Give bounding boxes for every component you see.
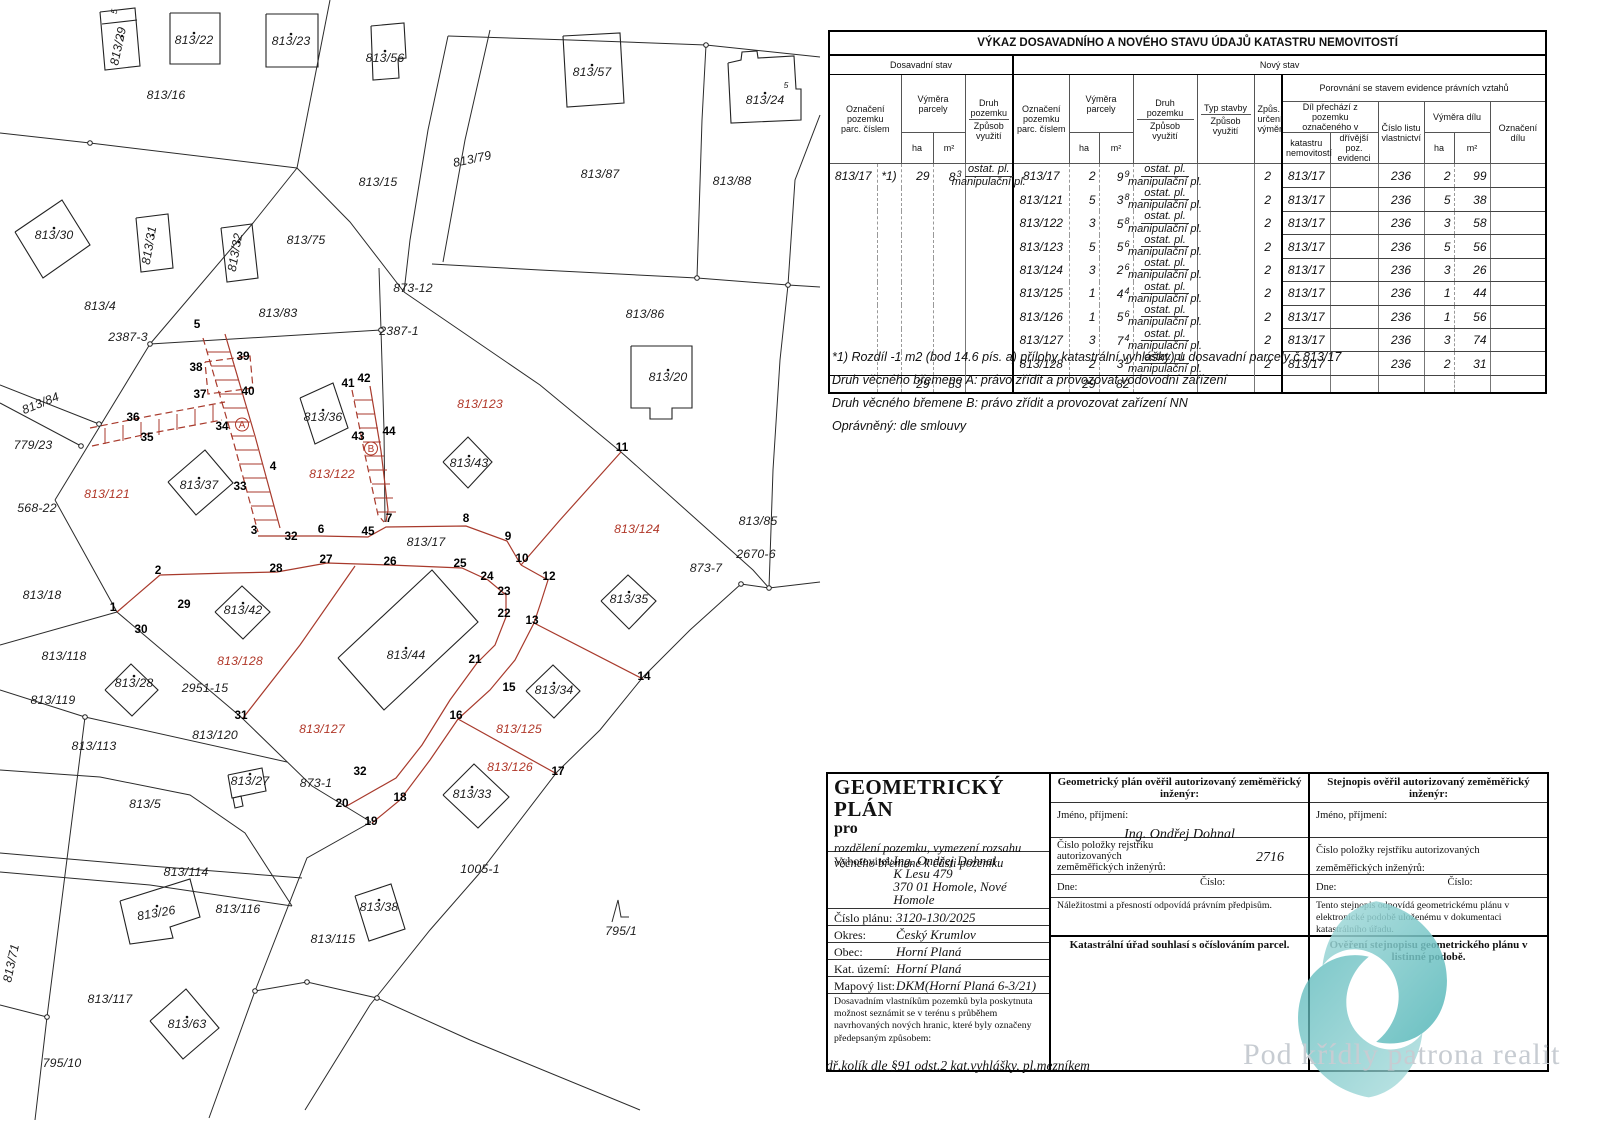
cell-old-ha [901, 258, 933, 281]
col-parcel-old: Označení pozemku parc. číslem [829, 75, 901, 164]
col-parcel-new: Označení pozemku parc. číslem [1013, 75, 1069, 164]
ha-label: ha [1069, 133, 1099, 164]
parcel-label: 813/83 [259, 306, 298, 320]
cell-new-landtype: ostat. pl.manipulační pl. [1133, 235, 1197, 258]
field-label: Mapový list: [834, 979, 896, 991]
building-dot [591, 64, 594, 67]
cell-old-landtype [965, 235, 1013, 258]
point-number: 11 [616, 440, 629, 454]
building-dot [468, 455, 471, 458]
cell-old-m2 [933, 305, 965, 328]
parcel-label: 813/4 [84, 299, 116, 313]
field-label: Okres: [834, 928, 896, 940]
building-dot [405, 647, 408, 650]
cell-new-ha: 3 [1069, 211, 1099, 234]
cell-old-ha [901, 305, 933, 328]
land-registry-table: VÝKAZ DOSAVADNÍHO A NOVÉHO STAVU ÚDAJŮ K… [828, 30, 1547, 394]
cell-new-ha: 1 [1069, 282, 1099, 305]
parcel-label: 813/84 [20, 390, 61, 418]
point-number: 27 [319, 552, 333, 566]
reg-value: 2716 [1256, 850, 1284, 866]
parcel-label: 813/20 [649, 370, 688, 384]
cell-part-id [1490, 164, 1546, 188]
cell-new-landtype: ostat. pl.manipulační pl. [1133, 282, 1197, 305]
cell-old-parcel [829, 329, 877, 352]
parcel-label: 813/36 [304, 410, 343, 424]
cell-old-note [877, 211, 901, 234]
parcel-label: 813/28 [115, 676, 154, 690]
cell-new-landtype: ostat. pl.manipulační pl. [1133, 211, 1197, 234]
parcel-label: 813/37 [180, 478, 220, 492]
cell-part-ha: 5 [1424, 188, 1454, 211]
cell-new-ha: 3 [1069, 329, 1099, 352]
footnote: Druh věcného břemene B: právo zřídit a p… [832, 396, 1341, 410]
point-number: 16 [449, 708, 463, 722]
point-number: 32 [353, 764, 367, 778]
cell-old-parcel [829, 235, 877, 258]
cell-buildtype [1197, 329, 1254, 352]
parcel-label: 813/116 [216, 902, 261, 916]
building-dot [378, 899, 381, 902]
parcel-label: 813/57 [573, 65, 613, 79]
plan-title-text: GEOMETRICKÝ PLÁN [834, 776, 1043, 820]
col-ownership-sheet: Číslo listu vlastnictví [1378, 102, 1424, 164]
cell-new-ha: 5 [1069, 235, 1099, 258]
parcel-label: 568-22 [17, 501, 57, 515]
point-number: 38 [189, 360, 203, 374]
date-number-row: Dne: Číslo: [1310, 875, 1547, 898]
easement-hatching [207, 352, 278, 520]
table-row: 813/124326ostat. pl.manipulační pl.2813/… [829, 258, 1546, 281]
building-dot [322, 409, 325, 412]
parcel-label: 813/123 [457, 397, 503, 411]
point-number: 13 [525, 613, 539, 627]
cell-from-former [1330, 164, 1378, 188]
date-label: Dne: [1316, 882, 1336, 893]
cell-part-id [1490, 211, 1546, 234]
footnote: Druh věcného břemene A: právo zřídit a p… [832, 373, 1341, 387]
cell-old-ha [901, 211, 933, 234]
buildings [15, 8, 801, 1059]
ha-label: ha [901, 133, 933, 164]
parcel-label: 2387-1 [378, 324, 419, 338]
point-number: 17 [551, 764, 565, 778]
cell-old-m2 [933, 188, 965, 211]
cell-part-id [1490, 188, 1546, 211]
cell-part-ha: 3 [1424, 211, 1454, 234]
cell-part-ha: 3 [1424, 329, 1454, 352]
verify-copy-header: Stejnopis ověřil autorizovaný zeměměřick… [1310, 774, 1547, 803]
parcel-label: 813/87 [581, 167, 621, 181]
boundary-lines [0, 0, 820, 1120]
parcel-label: 873-12 [393, 281, 433, 295]
use-label: Způsob využití [969, 119, 1010, 142]
point-number: 19 [364, 814, 378, 828]
point-number: 7 [386, 511, 393, 525]
parcel-label: 813/88 [713, 174, 752, 188]
cell-from-cadastre: 813/17 [1282, 164, 1330, 188]
field-value: Ing. Ondřej Dohnal K Lesu 479 370 01 Hom… [893, 854, 1043, 906]
cell-area-method: 2 [1254, 329, 1282, 352]
parcel-label: 813/5 [129, 797, 161, 811]
parcel-label: 5 [784, 80, 789, 90]
point-number: 5 [194, 317, 201, 331]
field-row: Kat. území: Horní Planá [828, 960, 1049, 977]
use-label: Způsob využití [1201, 114, 1251, 137]
building-dot [471, 786, 474, 789]
parcel-label: 813/114 [164, 865, 209, 879]
date-label: Dne: [1057, 882, 1077, 893]
cell-new-landtype: ostat. pl.manipulační pl. [1133, 305, 1197, 328]
cell-new-parcel: 813/124 [1013, 258, 1069, 281]
building-dot [764, 92, 767, 95]
cell-new-parcel: 813/121 [1013, 188, 1069, 211]
landtype-label: Druh pozemku [1137, 97, 1194, 119]
field-row: Číslo plánu: 3120-130/2025 [828, 909, 1049, 926]
parcel-label: 813/113 [72, 739, 117, 753]
cell-area-method: 2 [1254, 282, 1282, 305]
old-state-header: Dosavadní stav [829, 55, 1013, 75]
cell-old-parcel [829, 258, 877, 281]
col-comparison: Porovnání se stavem evidence právních vz… [1282, 75, 1546, 102]
cell-old-parcel [829, 282, 877, 305]
col-part-area: Výměra dílu [1424, 102, 1490, 133]
cell-buildtype [1197, 258, 1254, 281]
point-number: 31 [234, 708, 248, 722]
building-dot [249, 773, 252, 776]
verify-reg-row: Číslo položky rejstříku autorizovaných z… [1310, 838, 1547, 875]
parcel-label: 813/71 [0, 943, 22, 984]
field-value: Český Krumlov [896, 928, 976, 940]
building-dot [133, 675, 136, 678]
parcel-label: 813/27 [231, 774, 271, 788]
cell-from-cadastre: 813/17 [1282, 282, 1330, 305]
point-number: 39 [236, 349, 250, 363]
number-label: Číslo: [1200, 877, 1225, 888]
parcel-label: 813/38 [360, 900, 399, 914]
col-area-new: Výměra parcely [1069, 75, 1133, 133]
cell-new-ha: 2 [1069, 164, 1099, 188]
parcel-label: 813/122 [309, 467, 355, 481]
cell-ownership-sheet: 236 [1378, 235, 1424, 258]
cell-part-m2: 58 [1454, 211, 1490, 234]
cell-part-ha: 2 [1424, 164, 1454, 188]
building-dot [384, 50, 387, 53]
cell-ownership-sheet: 236 [1378, 282, 1424, 305]
point-number: 18 [393, 790, 407, 804]
table-row: 813/17*1)2983ostat. pl.manipulační pl.81… [829, 164, 1546, 188]
building-dot [198, 477, 201, 480]
cell-new-landtype: ostat. pl.manipulační pl. [1133, 258, 1197, 281]
cell-from-former [1330, 188, 1378, 211]
cell-buildtype [1197, 188, 1254, 211]
building-dot [238, 241, 241, 244]
parcel-label: 813/31 [139, 225, 160, 266]
cell-old-landtype [965, 282, 1013, 305]
cell-part-ha: 1 [1424, 282, 1454, 305]
point-number: 22 [497, 606, 511, 620]
cell-buildtype [1197, 164, 1254, 188]
cell-from-cadastre: 813/17 [1282, 305, 1330, 328]
landtype-label: Druh pozemku [969, 97, 1010, 119]
parcel-label: 813/23 [272, 34, 311, 48]
parcel-label: 5 [109, 8, 120, 15]
building-dot [290, 33, 293, 36]
cell-old-landtype [965, 188, 1013, 211]
parcel-label: 813/75 [287, 233, 326, 247]
building-dot [242, 602, 245, 605]
parcel-label: 795/10 [43, 1056, 82, 1070]
cell-from-cadastre: 813/17 [1282, 211, 1330, 234]
cell-part-ha: 3 [1424, 258, 1454, 281]
cell-area-method: 2 [1254, 305, 1282, 328]
cell-old-ha: 29 [901, 164, 933, 188]
building-dot [53, 227, 56, 230]
cell-old-note [877, 329, 901, 352]
parcel-label: 2951-15 [181, 681, 229, 695]
geometric-plan-document: 813/29813/22813/23813/56813/57813/245581… [0, 0, 1600, 1131]
point-number: 26 [383, 554, 397, 568]
cell-part-id [1490, 305, 1546, 328]
parcel-label: 813/30 [35, 228, 74, 242]
parcel-label: 813/125 [496, 722, 542, 736]
point-number: 40 [241, 384, 255, 398]
verify-plan-header: Geometrický plán ověřil autorizovaný zem… [1051, 774, 1308, 803]
cell-part-id [1490, 329, 1546, 352]
col-area-old: Výměra parcely [901, 75, 965, 133]
parcel-label: 873-1 [300, 776, 332, 790]
cell-part-id [1490, 282, 1546, 305]
cell-old-ha [901, 188, 933, 211]
name-label: Jméno, příjmení: [1316, 810, 1387, 821]
cell-old-m2 [933, 211, 965, 234]
parcel-label: 813/121 [84, 487, 130, 501]
verify-name-row: Jméno, příjmení: Ing. Ondřej Dohnal [1051, 803, 1308, 838]
field-label: Obec: [834, 945, 896, 957]
parcel-label: 813/29 [107, 26, 129, 67]
cell-new-ha: 3 [1069, 258, 1099, 281]
cell-ownership-sheet: 236 [1378, 258, 1424, 281]
cell-old-ha [901, 235, 933, 258]
point-number: 20 [335, 796, 349, 810]
field-row: Vyhotovitel: Ing. Ondřej Dohnal K Lesu 4… [828, 852, 1049, 909]
footnote: Oprávněný: dle smlouvy [832, 419, 1341, 433]
cell-old-parcel [829, 305, 877, 328]
table-row: 813/126156ostat. pl.manipulační pl.2813/… [829, 305, 1546, 328]
compliance-note: Náležitostmi a přesností odpovídá právní… [1051, 898, 1308, 937]
parcel-label: 813/43 [450, 456, 489, 470]
point-number: 1 [110, 600, 117, 614]
cell-old-note [877, 235, 901, 258]
building-dot [186, 1016, 189, 1019]
cell-old-m2 [933, 282, 965, 305]
cell-from-cadastre: 813/17 [1282, 258, 1330, 281]
cell-buildtype [1197, 211, 1254, 234]
cell-new-parcel: 813/127 [1013, 329, 1069, 352]
realty-watermark: Pod křídly patrona realit [1243, 1038, 1560, 1072]
col-part-id: Označení dílu [1490, 102, 1546, 164]
cell-ownership-sheet: 236 [1378, 329, 1424, 352]
parcel-label: 2670-6 [735, 547, 776, 561]
col-area-method: Způs. určení výměr [1254, 75, 1282, 164]
point-number: 44 [382, 424, 396, 438]
buildtype-label: Typ stavby [1201, 102, 1251, 114]
cell-ownership-sheet: 236 [1378, 352, 1424, 376]
point-number: 35 [140, 430, 154, 444]
cell-old-landtype [965, 211, 1013, 234]
point-number: 10 [515, 551, 529, 565]
cell-old-parcel [829, 188, 877, 211]
cell-old-note [877, 305, 901, 328]
parcel-label: 813/79 [452, 148, 493, 170]
footnotes: *1) Rozdíl -1 m2 (bod 14.6 pís. a) přílo… [832, 350, 1341, 442]
point-number: 2 [155, 563, 162, 577]
plan-verification-column: Geometrický plán ověřil autorizovaný zem… [1051, 774, 1310, 1070]
point-number: 12 [542, 569, 556, 583]
point-number: 45 [361, 524, 375, 538]
cell-from-former [1330, 235, 1378, 258]
cell-old-landtype [965, 258, 1013, 281]
building-dot [667, 369, 670, 372]
point-number: 41 [341, 376, 355, 390]
point-number: 9 [505, 529, 512, 543]
cell-old-note [877, 258, 901, 281]
reg-label: Číslo položky rejstříku autorizovaných z… [1316, 845, 1480, 874]
cell-new-landtype: ostat. pl.manipulační pl. [1133, 164, 1197, 188]
parcel-label: 813/63 [168, 1017, 207, 1031]
plan-pro: pro [834, 820, 1043, 838]
cell-blank [1378, 376, 1424, 393]
parcel-label: 813/42 [224, 603, 263, 617]
cell-ownership-sheet: 236 [1378, 188, 1424, 211]
cell-new-parcel: 813/122 [1013, 211, 1069, 234]
point-number: 37 [193, 387, 207, 401]
point-number: 36 [126, 410, 140, 424]
cell-old-m2 [933, 258, 965, 281]
cell-blank [1424, 376, 1454, 393]
parcel-label: 813/32 [225, 232, 246, 273]
cell-ownership-sheet: 236 [1378, 305, 1424, 328]
cell-blank [1490, 376, 1546, 393]
m2-label: m² [1454, 133, 1490, 164]
easement-letter: A [239, 420, 246, 431]
cell-old-landtype [965, 329, 1013, 352]
field-row: Okres: Český Krumlov [828, 926, 1049, 943]
map-labels: 813/29813/22813/23813/56813/57813/245581… [0, 8, 788, 1070]
parcel-label: 813/44 [387, 648, 426, 662]
cell-ownership-sheet: 236 [1378, 211, 1424, 234]
field-value: Horní Planá [896, 962, 961, 974]
parcel-label: 2387-3 [107, 330, 148, 344]
paper-copy-header: Ověření stejnopisu geometrického plánu v… [1310, 937, 1547, 965]
cell-from-cadastre: 813/17 [1282, 188, 1330, 211]
point-number: 29 [177, 597, 191, 611]
parcel-label: 813/33 [453, 787, 492, 801]
cell-old-note: *1) [877, 164, 901, 188]
cell-old-m2 [933, 329, 965, 352]
cell-old-parcel [829, 211, 877, 234]
new-state-lines [90, 334, 643, 823]
parcel-label: 813/85 [739, 514, 778, 528]
cell-part-m2: 26 [1454, 258, 1490, 281]
point-number: 21 [468, 652, 482, 666]
point-number: 33 [233, 479, 247, 493]
cell-old-note [877, 282, 901, 305]
cell-area-method: 2 [1254, 258, 1282, 281]
field-row: Obec: Horní Planá [828, 943, 1049, 960]
field-value: Horní Planá [896, 945, 961, 957]
cell-new-parcel: 813/126 [1013, 305, 1069, 328]
parcel-label: 813/15 [359, 175, 398, 189]
field-label: Kat. území: [834, 962, 896, 974]
cell-area-method: 2 [1254, 235, 1282, 258]
parcel-label: 813/120 [192, 728, 238, 742]
cell-from-former [1330, 282, 1378, 305]
parcel-label: 813/118 [42, 649, 87, 663]
parcel-label: 813/34 [535, 683, 574, 697]
point-number: 43 [351, 429, 365, 443]
cell-new-ha: 5 [1069, 188, 1099, 211]
cell-from-former [1330, 305, 1378, 328]
parcel-label: 813/119 [31, 693, 76, 707]
field-value: 3120-130/2025 [896, 911, 975, 923]
table-row: 813/127374ostat. pl.manipulační pl.2813/… [829, 329, 1546, 352]
field-value: DKM(Horní Planá 6-3/21) [896, 979, 1036, 991]
parcel-label: 813/16 [147, 88, 186, 102]
parcel-label: 813/127 [299, 722, 346, 736]
cell-old-m2 [933, 235, 965, 258]
plan-info-column: GEOMETRICKÝ PLÁN pro rozdělení pozemku, … [828, 774, 1051, 1070]
cell-part-m2: 56 [1454, 305, 1490, 328]
table-title: VÝKAZ DOSAVADNÍHO A NOVÉHO STAVU ÚDAJŮ K… [829, 31, 1546, 55]
col-former-records: dřívější poz. evidenci [1330, 133, 1378, 164]
parcel-label: 813/56 [366, 51, 405, 65]
field-row: Mapový list: DKM(Horní Planá 6-3/21) [828, 977, 1049, 994]
parcel-label: 873-7 [690, 561, 723, 575]
point-number: 6 [318, 522, 325, 536]
use-label: Způsob využití [1137, 119, 1194, 142]
cell-buildtype [1197, 305, 1254, 328]
plan-title: GEOMETRICKÝ PLÁN pro rozdělení pozemku, … [828, 774, 1049, 852]
table-row: 813/122358ostat. pl.manipulační pl.2813/… [829, 211, 1546, 234]
survey-nodes [45, 43, 791, 1020]
m2-label: m² [1099, 133, 1133, 164]
point-number: 23 [497, 584, 511, 598]
col-cadastre: katastru nemovitostí [1282, 133, 1330, 164]
cell-new-parcel: 813/123 [1013, 235, 1069, 258]
parcel-label: 813/126 [487, 760, 533, 774]
cell-new-landtype: ostat. pl.manipulační pl. [1133, 188, 1197, 211]
easement-letter: B [368, 444, 375, 455]
parcel-label: 813/124 [614, 522, 660, 536]
cell-old-landtype [965, 305, 1013, 328]
cell-old-parcel: 813/17 [829, 164, 877, 188]
m2-label: m² [933, 133, 965, 164]
point-number: 3 [251, 523, 258, 537]
cell-part-m2: 38 [1454, 188, 1490, 211]
owners-notice: Dosavadním vlastníkům pozemků byla posky… [828, 994, 1049, 1047]
reg-label: Číslo položky rejstříku autorizovaných z… [1057, 840, 1217, 873]
point-number: 42 [357, 371, 371, 385]
cell-area-method: 2 [1254, 188, 1282, 211]
building-dot [152, 234, 155, 237]
building-dot [628, 591, 631, 594]
verify-name-row: Jméno, příjmení: [1310, 803, 1547, 838]
cell-old-landtype: ostat. pl.manipulační pl. [965, 164, 1013, 188]
parcel-label: 813/115 [311, 932, 356, 946]
cell-from-former [1330, 258, 1378, 281]
building-dot [121, 35, 124, 38]
